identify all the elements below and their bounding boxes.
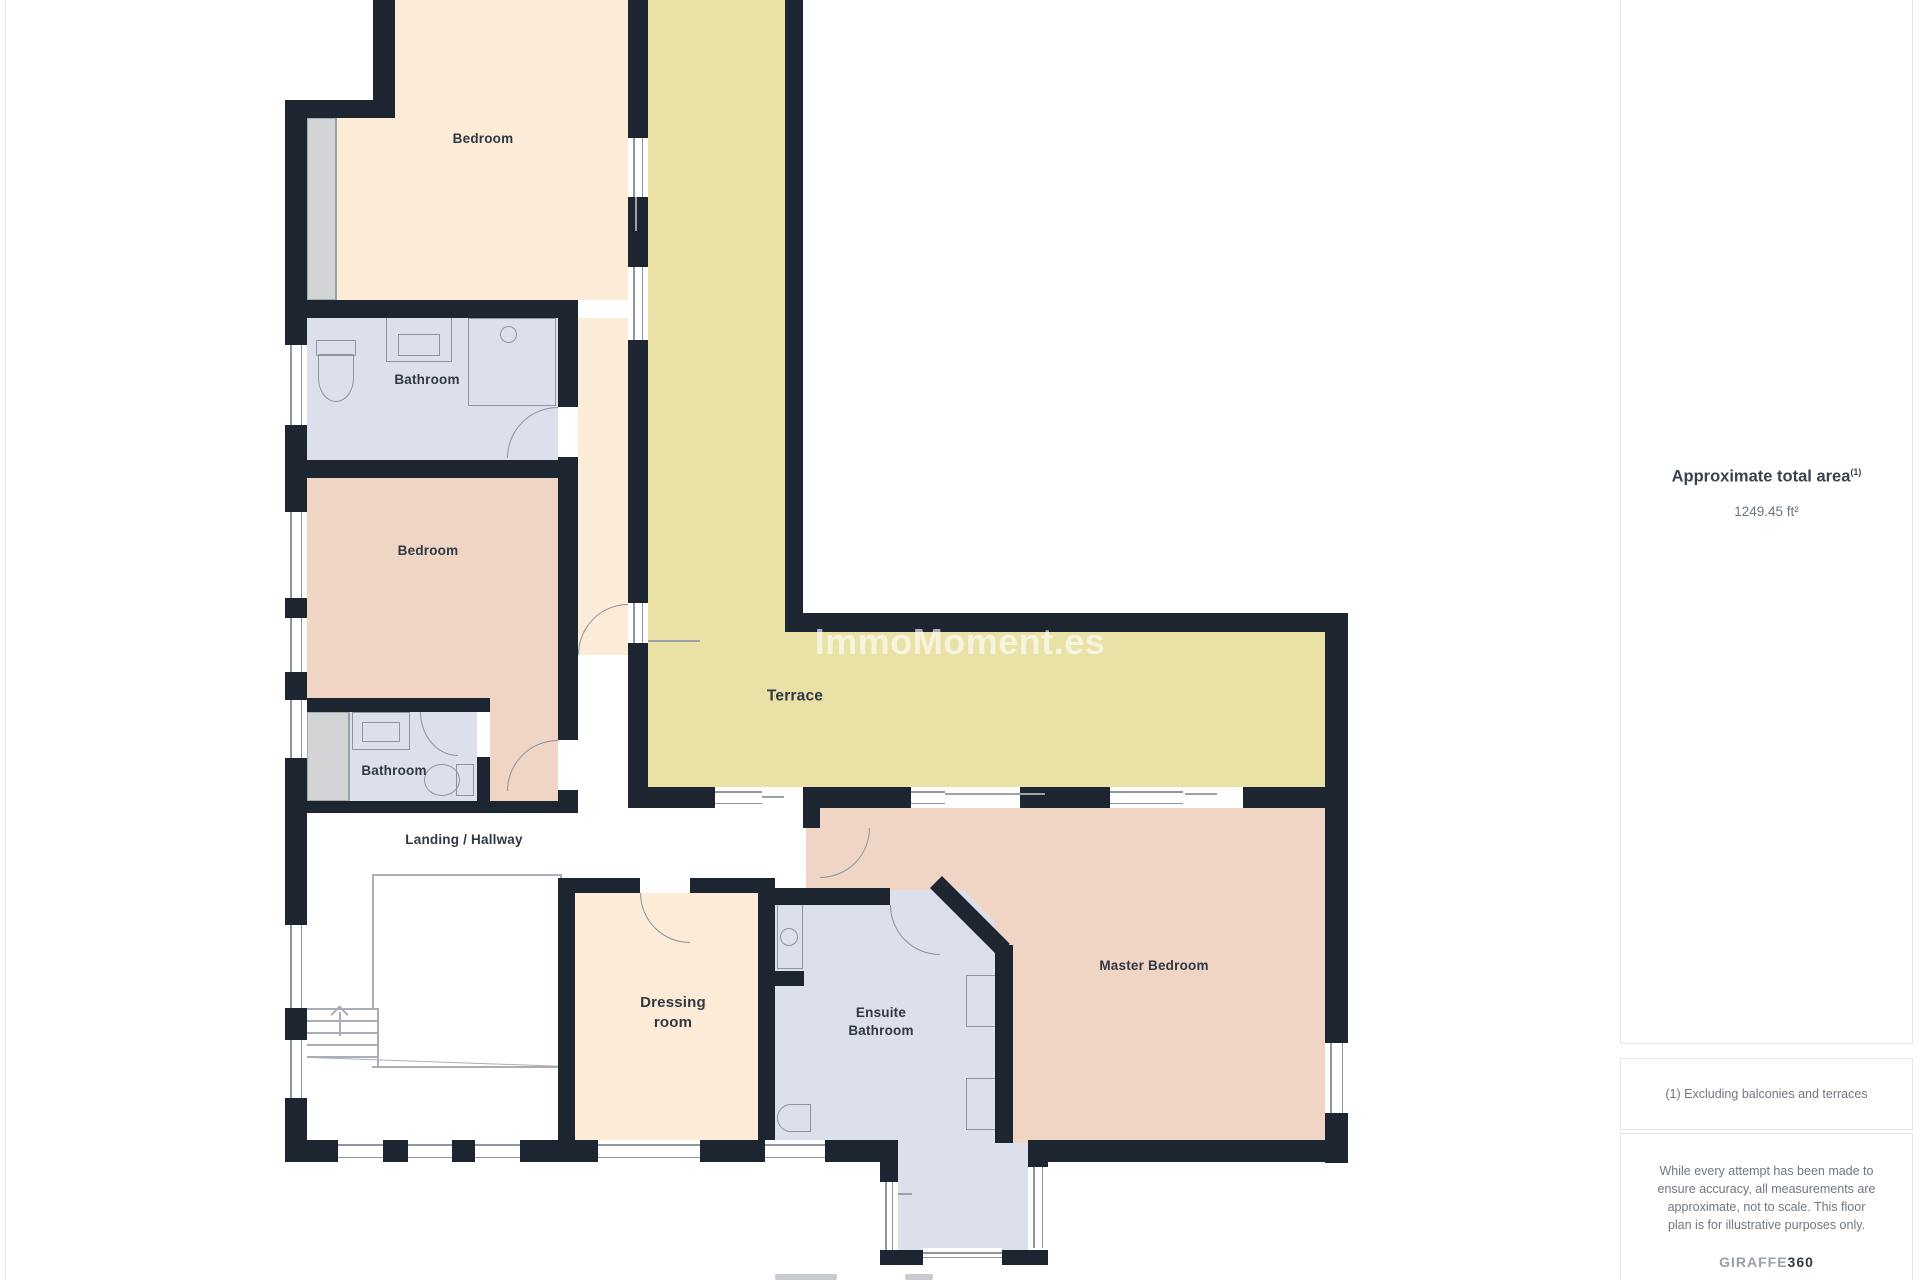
wall: [880, 1250, 923, 1265]
wardrobe: [307, 118, 337, 300]
room-label-landing: Landing / Hallway: [405, 831, 522, 849]
room-label-bedroom-1: Bedroom: [453, 130, 514, 148]
disclaimer-line: ensure accuracy, all measurements are: [1621, 1180, 1912, 1198]
stair-tread: [307, 1020, 379, 1022]
wall: [803, 787, 820, 828]
disclaimer-text: While every attempt has been made to ens…: [1621, 1162, 1912, 1234]
stairwell-outline: [372, 1066, 562, 1068]
room-bedroom-2-fill: [307, 478, 558, 698]
window: [880, 1182, 898, 1250]
wall: [558, 457, 578, 740]
wall: [558, 878, 575, 1140]
room-label-master: Master Bedroom: [1099, 957, 1208, 975]
toilet-fixture: [777, 1104, 811, 1132]
wall: [1002, 1250, 1048, 1265]
window: [285, 345, 307, 425]
area-panel: Approximate total area(1) 1249.45 ft²: [1620, 0, 1913, 1044]
sink-fixture: [362, 722, 400, 742]
giraffe360-logo: GIRAFFE360: [1621, 1254, 1912, 1270]
shower-panel-fixture: [966, 975, 996, 1027]
wall: [285, 460, 578, 478]
window: [1110, 787, 1183, 808]
stairwell-outline: [372, 874, 374, 1010]
wall: [1028, 1143, 1048, 1167]
cropped-label-fragment: [775, 1274, 837, 1280]
window: [285, 1040, 307, 1098]
room-bedroom-1-fill: [373, 0, 628, 300]
wall: [995, 945, 1013, 1143]
window: [1325, 1043, 1348, 1113]
room-label-bedroom-2: Bedroom: [398, 542, 459, 560]
window: [408, 1140, 452, 1162]
window: [715, 787, 762, 808]
window: [285, 700, 307, 758]
wall: [285, 300, 578, 318]
door-opening: [945, 787, 1020, 808]
window: [765, 1140, 825, 1162]
wall: [785, 0, 803, 632]
door-leaf-line: [1185, 793, 1217, 795]
toilet-tank-fixture: [456, 764, 474, 796]
wall: [758, 888, 775, 1140]
footnote-panel: (1) Excluding balconies and terraces: [1620, 1058, 1913, 1130]
shower-panel-fixture: [966, 1078, 996, 1130]
wall: [628, 0, 648, 787]
stair-tread: [307, 1044, 379, 1046]
wall: [880, 1143, 898, 1182]
window: [475, 1140, 520, 1162]
area-heading-text: Approximate total area: [1672, 468, 1851, 486]
floorplan-page: Bedroom Bathroom Bedroom Bathroom Landin…: [0, 0, 1920, 1280]
stairwell-outline: [372, 874, 562, 876]
disclaimer-line: plan is for illustrative purposes only.: [1621, 1216, 1912, 1234]
window: [285, 618, 307, 672]
room-label-bathroom-1: Bathroom: [394, 371, 459, 389]
door-leaf-line: [762, 796, 784, 798]
wall: [373, 0, 395, 100]
window: [923, 1248, 1002, 1262]
door-opening: [1183, 787, 1243, 808]
disclaimer-line: While every attempt has been made to: [1621, 1162, 1912, 1180]
door-leaf-line: [945, 793, 1045, 795]
watermark: ImmoMoment.es: [815, 621, 1106, 663]
window-pane-line: [635, 197, 637, 231]
window: [628, 138, 648, 197]
wall: [775, 888, 890, 905]
toilet-fixture: [424, 764, 460, 796]
wall: [285, 801, 578, 813]
bay-window-handle: [898, 1193, 912, 1195]
room-label-terrace: Terrace: [767, 687, 823, 708]
window: [285, 512, 307, 598]
sink-drain-icon: [780, 928, 798, 946]
wall: [758, 971, 804, 986]
room-label-ensuite: Ensuite Bathroom: [848, 1004, 913, 1040]
wall: [285, 100, 395, 118]
giraffe360-logo-text: GIRAFFE: [1719, 1254, 1787, 1270]
window: [628, 603, 648, 643]
wall: [558, 318, 578, 407]
room-label-bathroom-2: Bathroom: [361, 762, 426, 780]
window: [911, 787, 945, 808]
area-heading-footnote-marker: (1): [1850, 467, 1861, 477]
window: [1028, 1167, 1048, 1248]
room-ensuite-bay-fill: [898, 1143, 1028, 1250]
area-heading: Approximate total area(1): [1621, 467, 1912, 487]
window: [338, 1140, 383, 1162]
room-terrace-fill: [648, 0, 785, 787]
wall: [1028, 1140, 1347, 1162]
stair-tread: [307, 1032, 379, 1034]
giraffe360-logo-number: 360: [1788, 1254, 1814, 1270]
shower-head-icon: [500, 326, 517, 343]
wardrobe: [307, 712, 350, 801]
window: [598, 1140, 700, 1162]
sink-fixture: [398, 334, 440, 356]
floorplan-drawing: Bedroom Bathroom Bedroom Bathroom Landin…: [0, 0, 1620, 1280]
disclaimer-panel: While every attempt has been made to ens…: [1620, 1133, 1913, 1280]
footnote-text: (1) Excluding balconies and terraces: [1665, 1085, 1867, 1103]
wall: [477, 757, 490, 801]
cropped-label-fragment: [905, 1274, 933, 1280]
window-pane-line: [648, 640, 700, 642]
disclaimer-line: approximate, not to scale. This floor: [1621, 1198, 1912, 1216]
window: [285, 925, 307, 1008]
toilet-fixture: [318, 354, 354, 402]
room-label-dressing: Dressing room: [640, 993, 706, 1034]
wall: [285, 698, 490, 712]
area-value: 1249.45 ft²: [1621, 504, 1912, 519]
window: [628, 267, 648, 340]
